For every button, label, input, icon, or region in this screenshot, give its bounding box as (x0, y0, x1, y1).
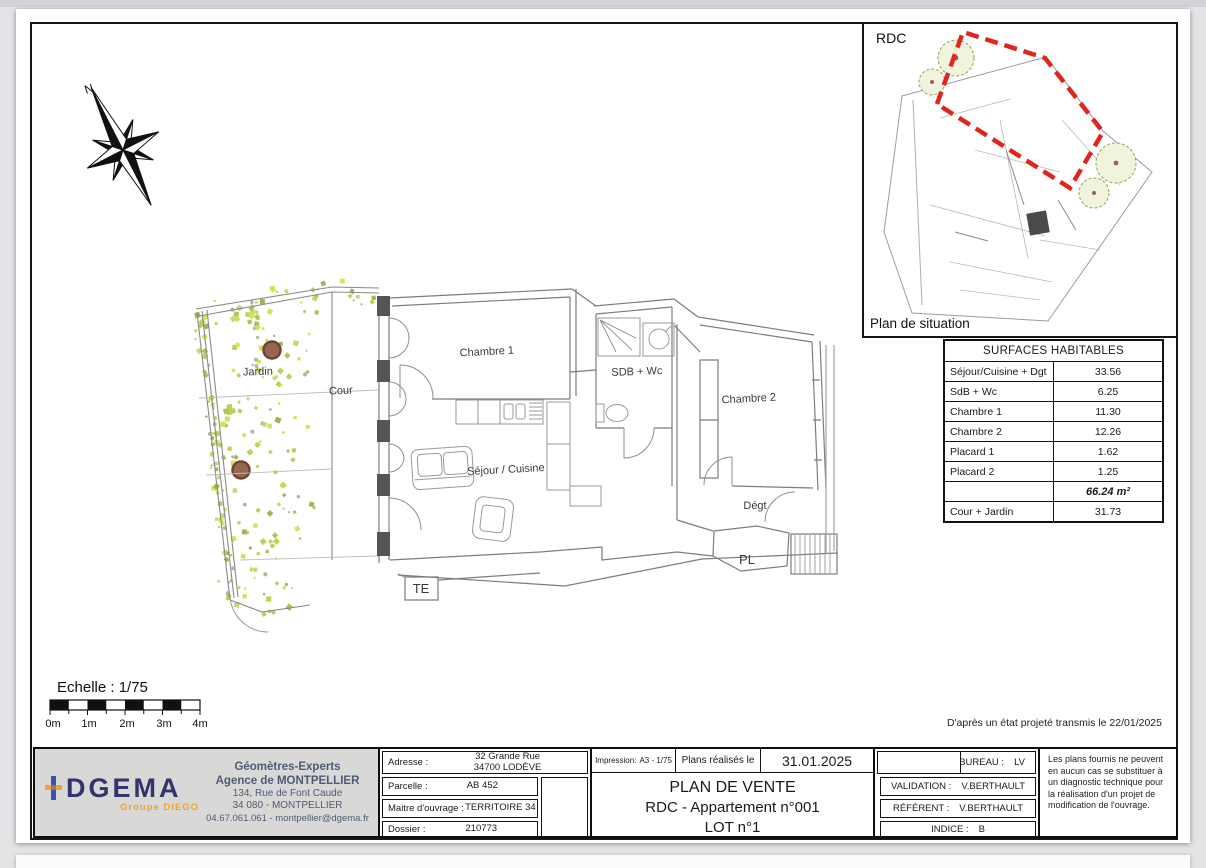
kitchen-counter (456, 400, 601, 506)
disclaimer-text: Les plans fournis ne peuvent en aucun ca… (1040, 749, 1176, 836)
agency-line: 34 080 - MONTPELLIER (203, 800, 372, 813)
dgema-logo: DGEMA Groupe DIEGO (45, 773, 203, 813)
drawing-title-line2: RDC - Appartement n°001 (592, 798, 873, 818)
scale-tick-1: 1m (81, 718, 96, 730)
sofa-icon (411, 446, 475, 490)
toilet-icon (596, 404, 604, 422)
table-row: Chambre 212.26 (944, 422, 1163, 442)
pdf-plan-viewer: Jardin Cour Chambre 1 SDB + Wc Chambre 2… (0, 0, 1206, 868)
scale-tick-0: 0m (45, 718, 60, 730)
label-chambre1: Chambre 1 (459, 345, 514, 360)
title-block-address-cell: Adresse : 32 Grande Rue 34700 LODÈVE Par… (380, 749, 592, 836)
field-impression: Impression: A3 - 1/75 (592, 749, 676, 772)
label-chambre2: Chambre 2 (721, 392, 776, 407)
label-te: TE (413, 581, 430, 596)
scale-label: Echelle : 1/75 (57, 679, 148, 696)
label-degt: Dégt (743, 500, 766, 512)
table-row: Cour + Jardin31.73 (944, 502, 1163, 523)
label-cour: Cour (329, 384, 354, 397)
field-validation: VALIDATION : V.BERTHAULT (880, 777, 1036, 796)
door-arcs (389, 318, 795, 530)
label-sejour: Séjour / Cuisine (467, 462, 545, 478)
title-block: DGEMA Groupe DIEGO Géomètres-Experts Age… (33, 747, 1178, 838)
field-dossier: Dossier : 210773 (382, 821, 538, 838)
field-plans-realises: Plans réalisés le (676, 749, 761, 772)
scale-tick-2: 2m (119, 718, 134, 730)
title-block-brand-cell: DGEMA Groupe DIEGO Géomètres-Experts Age… (35, 749, 380, 836)
field-parcelle: Parcelle : AB 452 (382, 777, 538, 796)
empty-cell (541, 777, 588, 838)
stairs-hatch (795, 534, 830, 573)
table-row: Placard 11.62 (944, 442, 1163, 462)
situation-caption: Plan de situation (870, 316, 970, 331)
drawing-title-line3: LOT n°1 (592, 818, 873, 838)
scale-tick-4: 4m (192, 718, 207, 730)
scale-tick-3: 3m (156, 718, 171, 730)
title-block-people-cell: BUREAU : LV VALIDATION : V.BERTHAULT RÉF… (875, 749, 1040, 836)
agency-contact: 04.67.061.061 - montpellier@dgema.fr (203, 813, 372, 826)
field-indice: INDICE : B (880, 821, 1036, 838)
room-labels: Jardin Cour Chambre 1 SDB + Wc Chambre 2… (243, 345, 777, 596)
title-block-title-cell: Impression: A3 - 1/75 Plans réalisés le … (592, 749, 875, 836)
surfaces-table-title: SURFACES HABITABLES (944, 340, 1163, 362)
dgema-plus-icon (45, 775, 62, 801)
field-bureau: BUREAU : LV (877, 751, 1036, 774)
agency-line: Agence de MONTPELLIER (203, 774, 372, 788)
drawing-title: PLAN DE VENTE RDC - Appartement n°001 LO… (592, 773, 873, 838)
situation-inset-frame (862, 22, 1178, 338)
armchair-icon (472, 496, 515, 542)
table-row: Placard 21.25 (944, 462, 1163, 482)
washbasin-icon (649, 329, 669, 349)
compass-rose-icon (51, 67, 192, 226)
projected-state-note: D'après un état projeté transmis le 22/0… (900, 717, 1162, 729)
compass-north-label: N (83, 81, 96, 97)
field-referent: RÉFÉRENT : V.BERTHAULT (880, 799, 1036, 818)
agency-line: 134, Rue de Font Caude (203, 788, 372, 801)
table-row: SdB + Wc6.25 (944, 382, 1163, 402)
agency-info: Géomètres-Experts Agence de MONTPELLIER … (203, 760, 372, 826)
drawing-title-line1: PLAN DE VENTE (592, 777, 873, 798)
surfaces-table: SURFACES HABITABLES Séjour/Cuisine + Dgt… (943, 339, 1164, 523)
brand-name: DGEMA (66, 773, 182, 804)
garden-walls (196, 287, 379, 632)
agency-line: Géomètres-Experts (203, 760, 372, 774)
label-sdb: SDB + Wc (611, 365, 663, 379)
table-row-total: 66.24 m² (944, 482, 1163, 502)
cell-divider (960, 752, 961, 773)
label-jardin: Jardin (243, 365, 273, 378)
cour-terrace-lines (199, 390, 378, 560)
label-pl: PL (739, 552, 755, 567)
situation-floor-label: RDC (876, 30, 906, 46)
field-adresse: Adresse : 32 Grande Rue 34700 LODÈVE (382, 751, 588, 774)
field-date: 31.01.2025 (761, 749, 873, 772)
apartment-walls (379, 289, 838, 600)
field-maitre-ouvrage: Maitre d'ouvrage : TERRITOIRE 34 (382, 799, 538, 818)
table-row: Séjour/Cuisine + Dgt33.56 (944, 362, 1163, 382)
scale-bar: 0m 1m 2m 3m 4m (45, 700, 207, 730)
table-row: Chambre 111.30 (944, 402, 1163, 422)
